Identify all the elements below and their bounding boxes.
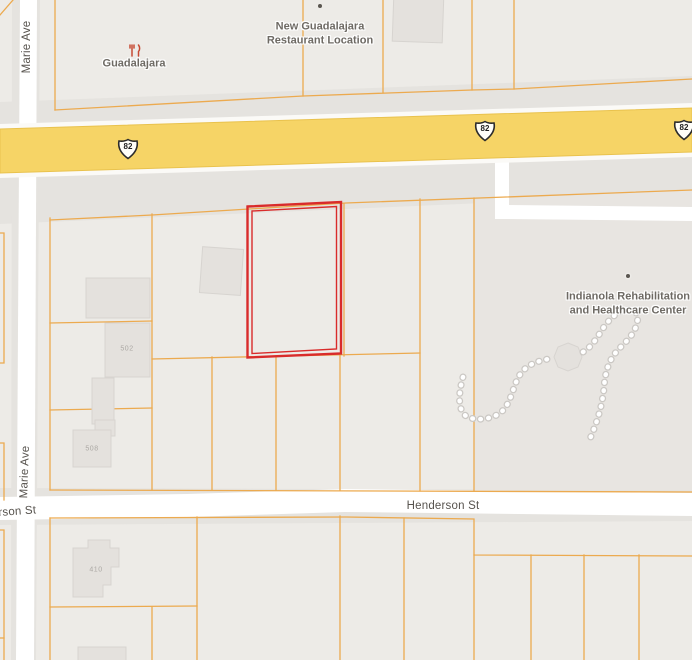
- house-number-508: 508: [85, 446, 98, 453]
- poi-dot-icon[interactable]: [626, 274, 630, 278]
- poi-label-indianola-rehab[interactable]: Indianola Rehabilitation and Healthcare …: [565, 291, 691, 318]
- poi-label-guadalajara[interactable]: Guadalajara: [103, 57, 166, 71]
- route-number: 82: [473, 124, 497, 133]
- us82-shield: 82: [116, 138, 140, 160]
- route-number: 82: [116, 142, 140, 151]
- restaurant-icon: [129, 44, 141, 57]
- us82-shield: 82: [672, 119, 692, 141]
- street-label-henderson-st-partial: rson St: [0, 504, 37, 519]
- street-label-henderson-st: Henderson St: [407, 500, 480, 512]
- route-number: 82: [672, 123, 692, 132]
- house-number-502: 502: [120, 346, 133, 353]
- poi-label-new-guadalajara[interactable]: New Guadalajara Restaurant Location: [264, 21, 376, 48]
- house-number-410: 410: [89, 567, 102, 574]
- street-label-marie-ave-bottom: Marie Ave: [18, 445, 32, 498]
- map-canvas[interactable]: Marie Ave Marie Ave Henderson St rson St…: [0, 0, 692, 660]
- poi-dot-icon[interactable]: [318, 4, 322, 8]
- label-overlay: Marie Ave Marie Ave Henderson St rson St…: [0, 0, 692, 660]
- us82-shield: 82: [473, 120, 497, 142]
- street-label-marie-ave-top: Marie Ave: [21, 21, 33, 74]
